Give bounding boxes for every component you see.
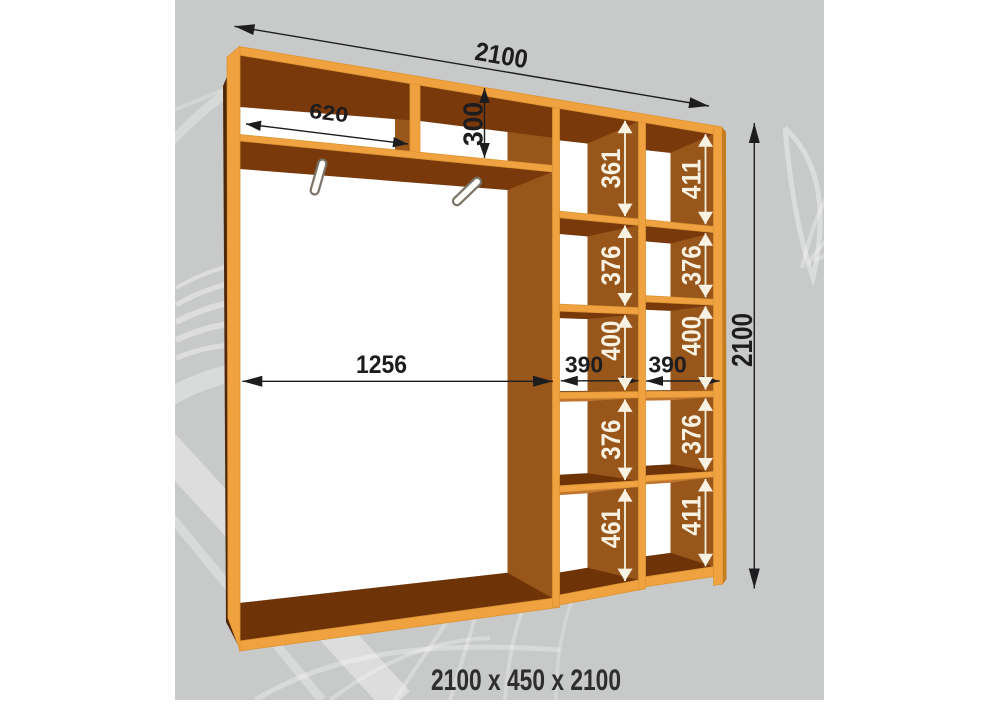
svg-text:400: 400 bbox=[596, 321, 626, 361]
svg-text:1256: 1256 bbox=[356, 351, 407, 379]
svg-text:411: 411 bbox=[677, 496, 707, 536]
svg-text:2100 x 450 x 2100: 2100 x 450 x 2100 bbox=[431, 664, 621, 697]
svg-text:376: 376 bbox=[596, 420, 626, 460]
svg-text:411: 411 bbox=[677, 159, 707, 199]
svg-text:376: 376 bbox=[596, 246, 626, 286]
svg-text:376: 376 bbox=[677, 245, 707, 285]
svg-text:300: 300 bbox=[458, 102, 489, 146]
svg-text:400: 400 bbox=[677, 316, 707, 356]
svg-text:620: 620 bbox=[308, 100, 350, 128]
svg-text:361: 361 bbox=[596, 149, 626, 189]
svg-text:461: 461 bbox=[596, 508, 626, 548]
svg-text:2100: 2100 bbox=[727, 313, 759, 367]
svg-text:376: 376 bbox=[677, 414, 707, 454]
